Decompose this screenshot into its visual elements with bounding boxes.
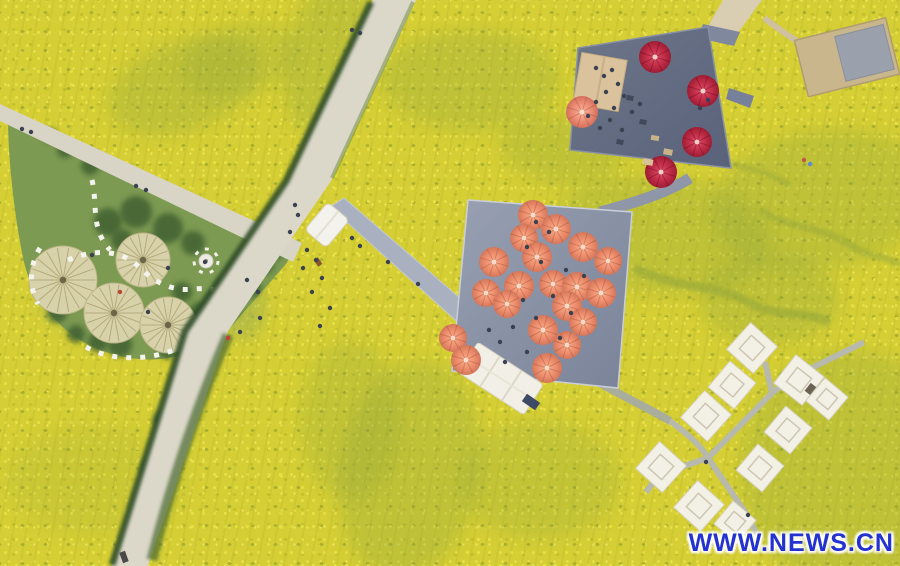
person: [386, 260, 390, 264]
umbrella-tip: [652, 54, 657, 59]
person: [350, 236, 354, 240]
person: [226, 336, 230, 340]
straw-circle: [84, 283, 144, 343]
person: [258, 316, 262, 320]
person: [503, 360, 507, 364]
aerial-photo-canvas: WWW.NEWS.CN: [0, 0, 900, 566]
person: [134, 184, 138, 188]
straw-circle-center: [60, 277, 66, 283]
umbrella-tip: [522, 236, 526, 240]
coral-umbrella: [568, 232, 598, 262]
umbrella-tip: [517, 284, 522, 289]
umbrella-tip: [531, 213, 536, 218]
tent-path: [765, 362, 772, 393]
umbrella-tip: [581, 245, 586, 250]
tree: [181, 231, 205, 255]
straw-circle-center: [140, 257, 146, 263]
person: [328, 306, 332, 310]
person: [569, 311, 573, 315]
person: [622, 94, 626, 98]
person: [358, 31, 362, 35]
person: [90, 253, 94, 257]
tree: [67, 325, 85, 343]
field-green-patch: [460, 420, 620, 540]
umbrella-tip: [581, 320, 585, 324]
umbrella-tip: [565, 304, 570, 309]
person: [296, 213, 300, 217]
umbrella-tip: [575, 285, 580, 290]
umbrella-tip: [535, 255, 540, 260]
person: [146, 310, 150, 314]
plaza-boardwalk: [330, 198, 476, 326]
umbrella-tip: [545, 366, 550, 371]
person: [586, 114, 590, 118]
person: [534, 316, 538, 320]
person: [630, 110, 634, 114]
person: [305, 248, 309, 252]
person: [612, 106, 616, 110]
straw-circle-center: [111, 310, 117, 316]
coral-umbrella: [451, 345, 481, 375]
person: [118, 290, 122, 294]
person: [558, 336, 562, 340]
coral-umbrella: [569, 308, 597, 336]
person: [608, 118, 612, 122]
umbrella-tip: [606, 259, 610, 263]
field-green-patch: [700, 255, 840, 345]
person: [808, 162, 812, 166]
coral-umbrella: [479, 247, 509, 277]
person: [698, 106, 702, 110]
person: [416, 282, 420, 286]
umbrella-tip: [484, 291, 488, 295]
person: [594, 100, 598, 104]
scene-layer: [0, 0, 900, 566]
straw-circle-center: [165, 322, 171, 328]
tent: [636, 442, 687, 493]
coral-umbrella: [594, 247, 622, 275]
umbrella-tip: [505, 302, 509, 306]
person: [166, 266, 170, 270]
person: [320, 276, 324, 280]
person: [203, 260, 207, 264]
person: [525, 350, 529, 354]
person: [802, 158, 806, 162]
person: [706, 98, 710, 102]
person: [521, 298, 525, 302]
person: [539, 260, 543, 264]
person: [534, 220, 538, 224]
person: [288, 230, 292, 234]
person: [620, 128, 624, 132]
umbrella-tip: [541, 328, 546, 333]
person: [358, 244, 362, 248]
person: [598, 126, 602, 130]
person: [318, 324, 322, 328]
person: [746, 513, 750, 517]
person: [610, 68, 614, 72]
coral-umbrella: [528, 315, 558, 345]
person: [551, 294, 555, 298]
person: [582, 274, 586, 278]
person: [511, 325, 515, 329]
person: [314, 258, 318, 262]
person: [245, 278, 249, 282]
tree: [120, 196, 152, 228]
umbrella-tip: [464, 358, 469, 363]
person: [602, 74, 606, 78]
person: [498, 340, 502, 344]
watermark: WWW.NEWS.CN: [689, 529, 894, 558]
umbrella-tip: [599, 291, 604, 296]
person: [350, 28, 354, 32]
red-umbrella: [687, 75, 719, 107]
umbrella-tip: [700, 88, 705, 93]
person: [256, 290, 260, 294]
person: [29, 130, 33, 134]
salmon-umbrella: [566, 96, 598, 128]
straw-circle: [116, 233, 170, 287]
person: [20, 127, 24, 131]
umbrella-tip: [554, 227, 559, 232]
red-umbrella: [682, 127, 712, 157]
field-green-patch: [380, 30, 560, 130]
red-umbrella: [639, 41, 671, 73]
coral-umbrella: [553, 331, 581, 359]
wooden-deck: [794, 18, 899, 97]
person: [604, 90, 608, 94]
person: [616, 82, 620, 86]
coral-umbrella: [532, 353, 562, 383]
person: [638, 102, 642, 106]
field-green-patch: [300, 340, 400, 500]
platform-east-stub: [726, 88, 754, 108]
person: [301, 266, 305, 270]
person: [564, 268, 568, 272]
umbrella-tip: [565, 343, 569, 347]
person: [144, 188, 148, 192]
coral-umbrella: [586, 278, 616, 308]
umbrella-tip: [579, 109, 584, 114]
person: [525, 245, 529, 249]
umbrella-tip: [658, 169, 663, 174]
person: [238, 330, 242, 334]
umbrella-tip: [451, 336, 455, 340]
person: [487, 328, 491, 332]
person: [547, 230, 551, 234]
umbrella-tip: [695, 140, 700, 145]
coral-umbrella: [541, 214, 571, 244]
umbrella-tip: [551, 282, 555, 286]
person: [310, 290, 314, 294]
tent-roof: [636, 442, 687, 493]
umbrella-tip: [492, 260, 497, 265]
person: [293, 203, 297, 207]
coral-umbrella: [493, 290, 521, 318]
person: [594, 66, 598, 70]
person: [704, 460, 708, 464]
